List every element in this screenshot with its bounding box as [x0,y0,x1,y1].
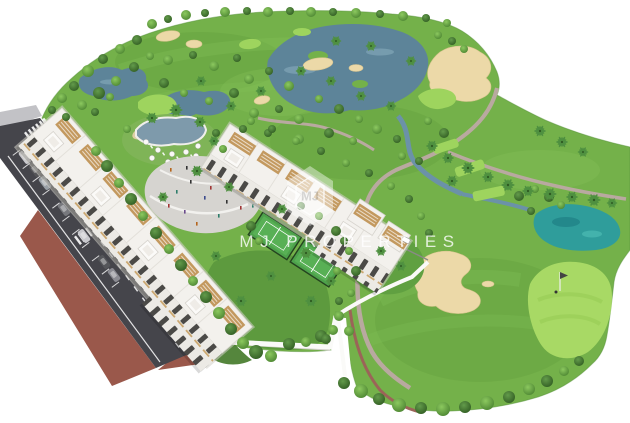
watermark-text: MJ PROPERTIES [239,232,460,251]
render-scene: MJ MJ PROPERTIES [0,0,630,423]
watermark-monogram: MJ [301,189,319,204]
property-aerial-render: MJ MJ PROPERTIES [0,0,630,423]
